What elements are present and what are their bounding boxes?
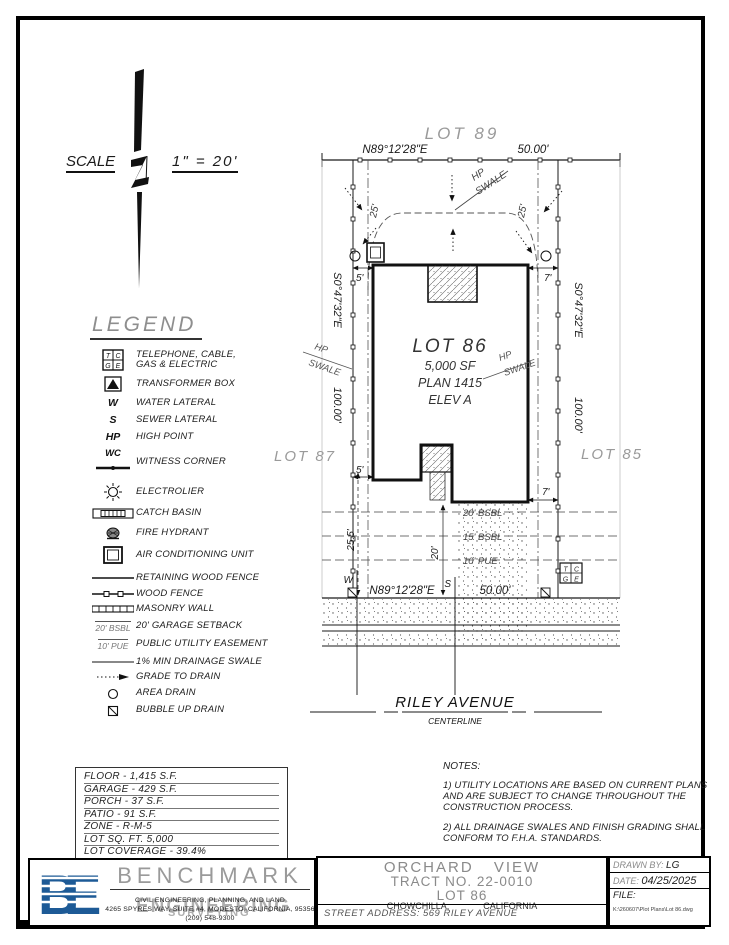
bsbl-symbol: 20' BSBL: [95, 621, 130, 633]
sidewalk: [322, 599, 620, 646]
svg-text:HP: HP: [313, 341, 330, 356]
bubble-up-drain-symbol: [90, 705, 136, 717]
firm-name: BENCHMARK: [110, 865, 310, 887]
dim-7-top: 7': [544, 273, 553, 284]
stat-patio: PATIO - 91 S.F.: [84, 809, 279, 822]
svg-text:E: E: [574, 577, 579, 584]
notes: NOTES: 1) UTILITY LOCATIONS ARE BASED ON…: [443, 761, 711, 853]
dim-20: 20': [430, 545, 441, 560]
stat-zone: ZONE - R-M-5: [84, 821, 279, 834]
stat-garage: GARAGE - 429 S.F.: [84, 784, 279, 797]
grade-to-drain-symbol: [90, 673, 136, 681]
scale-label: SCALE: [66, 153, 115, 172]
file-path: K:\260607\Plot Plans\Lot 86.dwg: [613, 907, 706, 913]
water-lateral-symbol: W: [90, 397, 136, 409]
lot-87-label: LOT 87: [274, 448, 336, 465]
rear-bearing: N89°12'28"E: [362, 144, 428, 156]
tcge-utility-box: T C G E: [560, 563, 582, 584]
pue-10-label: 10' PUE: [463, 556, 498, 567]
patio: [428, 265, 477, 302]
date-value: 04/25/2025: [641, 875, 696, 887]
walkway: [430, 472, 445, 500]
witness-corner-symbol: WC: [90, 448, 136, 477]
house-area: 5,000 SF: [425, 359, 477, 373]
high-point-symbol: HP: [90, 431, 136, 443]
dim-5-top: 5': [356, 273, 365, 284]
street-name: RILEY AVENUE: [395, 694, 515, 711]
west-bearing: S0°47'32"E: [331, 272, 343, 328]
lot-85-label: LOT 85: [581, 446, 643, 463]
svg-text:G: G: [563, 577, 569, 584]
dim-25-5: 25.5': [346, 528, 357, 551]
catch-basin-icon: [90, 507, 136, 520]
project-block: ORCHARD VIEW TRACT NO. 22-0010 LOT 86 CH…: [316, 856, 608, 927]
street-centerline-label: CENTERLINE: [428, 716, 482, 726]
west-distance: 100.00': [331, 387, 343, 424]
masonry-wall-symbol: [90, 604, 136, 614]
meta-block: DRAWN BY: LG DATE: 04/25/2025 FILE: K:\2…: [608, 856, 711, 927]
svg-text:T: T: [106, 353, 111, 360]
firm-block: B E BENCHMARK ENGINEERING SURVEYING CIVI…: [28, 858, 316, 927]
site-plan: LOT 89 LOT 87 LOT 85 N89°12'28"E 50.00' …: [250, 115, 650, 735]
ac-unit: [367, 243, 384, 262]
firm-logo: B E: [38, 865, 100, 923]
dim-25-right: 25': [516, 203, 530, 220]
east-bearing: S0°47'32"E: [572, 282, 584, 338]
lot-89-label: LOT 89: [425, 124, 500, 143]
notes-title: NOTES:: [443, 761, 711, 772]
drawn-by-row: DRAWN BY: LG: [610, 858, 709, 873]
scale-ratio: 1" = 20': [172, 153, 238, 172]
porch: [422, 446, 451, 472]
file-row: FILE: K:\260607\Plot Plans\Lot 86.dwg: [610, 889, 709, 913]
project-name: ORCHARD VIEW: [318, 860, 606, 875]
dim-25-left: 25': [368, 203, 382, 220]
tcge-box-icon: T C G E: [90, 349, 136, 371]
rear-distance: 50.00': [518, 144, 550, 156]
drawn-by-value: LG: [666, 860, 679, 871]
wood-fence-symbol: [90, 590, 136, 598]
svg-text:T: T: [563, 567, 568, 574]
stat-floor: FLOOR - 1,415 S.F.: [84, 771, 279, 784]
house-elevation: ELEV A: [428, 393, 471, 407]
firm-services: CIVIL ENGINEERING, PLANNING, AND LAND: [105, 897, 315, 906]
street-address: STREET ADDRESS: 569 RILEY AVENUE: [318, 904, 606, 925]
drainage-swale-symbol: [90, 659, 136, 665]
firm-address: 4265 SPYRES WAY, SUITE #4, MODESTO, CALI…: [105, 906, 315, 915]
plot-plan-sheet: SCALE 1" = 20' LEGEND T C G E TELEPHONE,…: [0, 0, 729, 945]
sewer-lateral-mark: S: [444, 579, 451, 590]
house-plan: PLAN 1415: [418, 376, 482, 390]
retaining-fence-symbol: [90, 575, 136, 581]
pue-symbol: 10' PUE: [98, 639, 129, 651]
note-1: 1) UTILITY LOCATIONS ARE BASED ON CURREN…: [443, 780, 711, 813]
svg-text:G: G: [105, 363, 111, 370]
bsbl-15-label: 15' BSBL: [463, 532, 502, 543]
ac-unit-icon: [90, 546, 136, 564]
bsbl-20-label: 20' BSBL: [462, 508, 502, 519]
stat-porch: PORCH - 37 S.F.: [84, 796, 279, 809]
title-block: B E BENCHMARK ENGINEERING SURVEYING CIVI…: [28, 856, 711, 927]
svg-text:C: C: [115, 353, 121, 360]
date-row: DATE: 04/25/2025: [610, 873, 709, 889]
east-distance: 100.00': [572, 397, 584, 434]
note-2: 2) ALL DRAINAGE SWALES AND FINISH GRADIN…: [443, 822, 711, 844]
firm-phone: (209) 548-9300: [105, 915, 315, 924]
sewer-lateral-symbol: S: [90, 414, 136, 426]
front-distance: 50.00': [480, 585, 512, 597]
transformer-box-icon: [90, 376, 136, 392]
north-arrow: [120, 66, 160, 291]
area-drain-right: [541, 251, 551, 261]
electrolier-icon: [90, 482, 136, 502]
project-lot: LOT 86: [318, 889, 606, 903]
legend-title: LEGEND: [90, 313, 202, 340]
svg-text:SWALE: SWALE: [307, 357, 342, 378]
stat-lot-sqft: LOT SQ. FT. 5,000: [84, 834, 279, 847]
dim-5-mid: 5': [356, 465, 365, 476]
area-drain-symbol: [90, 688, 136, 700]
water-lateral-mark: W: [344, 575, 355, 586]
dim-7-mid: 7': [542, 487, 551, 498]
project-tract: TRACT NO. 22-0010: [318, 875, 606, 889]
front-bearing: N89°12'28"E: [369, 585, 435, 597]
area-summary-box: FLOOR - 1,415 S.F. GARAGE - 429 S.F. POR…: [75, 767, 288, 862]
svg-text:E: E: [116, 363, 121, 370]
fire-hydrant-icon: [90, 525, 136, 541]
house-lot-number: LOT 86: [412, 336, 487, 357]
